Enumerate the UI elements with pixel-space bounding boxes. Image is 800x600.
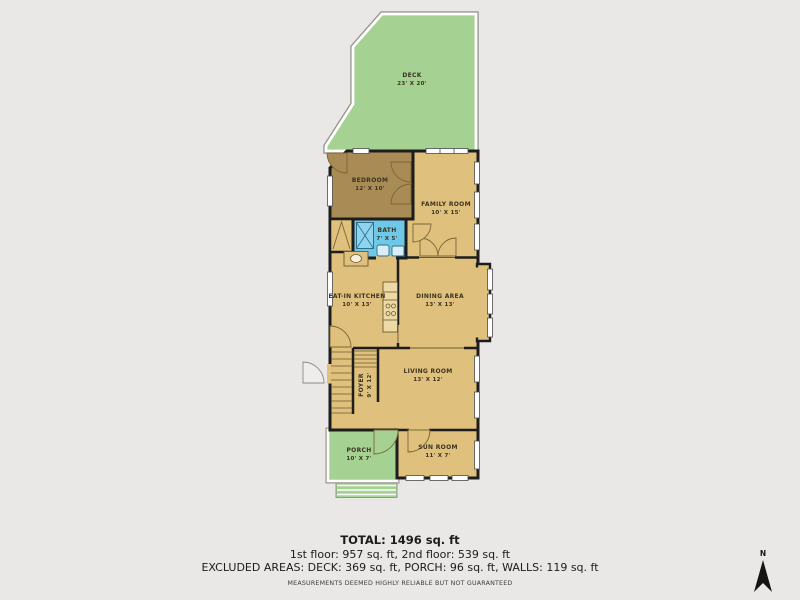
side-door-gap bbox=[327, 364, 334, 384]
bath-dims: 7' X 5' bbox=[376, 235, 397, 244]
floor-areas-text: 1st floor: 957 sq. ft, 2nd floor: 539 sq… bbox=[0, 548, 800, 561]
floor-plan-page: DECK 23' X 20' BEDROOM 12' X 10' FAMILY … bbox=[0, 0, 800, 600]
deck-dims: 23' X 20' bbox=[397, 80, 426, 89]
area-summary: TOTAL: 1496 sq. ft 1st floor: 957 sq. ft… bbox=[0, 533, 800, 587]
dining-area-name: DINING AREA bbox=[416, 292, 464, 301]
bedroom-label: BEDROOM 12' X 10' bbox=[352, 176, 389, 194]
shower bbox=[357, 223, 374, 249]
disclaimer-text: MEASUREMENTS DEEMED HIGHLY RELIABLE BUT … bbox=[0, 580, 800, 587]
toilet bbox=[377, 245, 389, 256]
deck-name: DECK bbox=[397, 71, 426, 80]
floor-plan-drawing bbox=[0, 0, 800, 600]
deck-label: DECK 23' X 20' bbox=[397, 71, 426, 89]
sun-room-name: SUN ROOM bbox=[418, 443, 458, 452]
family-room-label: FAMILY ROOM 10' X 15' bbox=[421, 200, 471, 218]
bath-label: BATH 7' X 5' bbox=[376, 226, 397, 244]
porch-label: PORCH 10' X 7' bbox=[346, 446, 371, 464]
bedroom-closet bbox=[330, 219, 353, 252]
dining-area-dims: 13' X 13' bbox=[416, 301, 464, 310]
bedroom-dims: 12' X 10' bbox=[352, 185, 389, 194]
sun-room-label: SUN ROOM 11' X 7' bbox=[418, 443, 458, 461]
north-label: N bbox=[760, 549, 766, 558]
excluded-areas-text: EXCLUDED AREAS: DECK: 369 sq. ft, PORCH:… bbox=[0, 561, 800, 574]
foyer-dims: 9' X 12' bbox=[366, 372, 375, 397]
hall-vanity bbox=[344, 252, 368, 267]
living-room-name: LIVING ROOM bbox=[403, 367, 452, 376]
eat-in-kitchen-label: EAT-IN KITCHEN 10' X 13' bbox=[328, 292, 385, 310]
dining-area-label: DINING AREA 13' X 13' bbox=[416, 292, 464, 310]
bath-name: BATH bbox=[376, 226, 397, 235]
eat-in-kitchen-name: EAT-IN KITCHEN bbox=[328, 292, 385, 301]
foyer-name: FOYER bbox=[357, 372, 366, 397]
living-room-dims: 13' X 12' bbox=[403, 376, 452, 385]
bedroom-name: BEDROOM bbox=[352, 176, 389, 185]
family-room-dims: 10' X 15' bbox=[421, 209, 471, 218]
bath-sink bbox=[392, 246, 404, 256]
porch-dims: 10' X 7' bbox=[346, 455, 371, 464]
living-room-label: LIVING ROOM 13' X 12' bbox=[403, 367, 452, 385]
porch-name: PORCH bbox=[346, 446, 371, 455]
total-area-text: TOTAL: 1496 sq. ft bbox=[0, 533, 800, 547]
eat-in-kitchen-dims: 10' X 13' bbox=[328, 301, 385, 310]
foyer-label: FOYER 9' X 12' bbox=[357, 372, 375, 397]
family-room-name: FAMILY ROOM bbox=[421, 200, 471, 209]
sun-room-dims: 11' X 7' bbox=[418, 452, 458, 461]
